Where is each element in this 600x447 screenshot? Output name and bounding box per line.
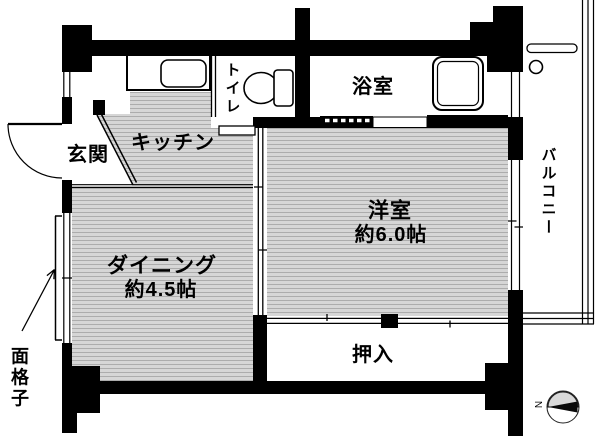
wall-segment — [493, 6, 523, 22]
bath-folding-door — [320, 116, 373, 128]
toilet-tank — [274, 70, 293, 106]
floor-plan: 玄関 キッチン トイレ 浴室 洋室 約6.0帖 ダイニング 約4.5帖 押入 バ… — [0, 0, 600, 447]
grate-arrow-line — [22, 270, 55, 332]
bathtub — [433, 57, 483, 110]
wall-segment — [295, 8, 310, 128]
bath-label: 浴室 — [352, 77, 394, 97]
wall-segment — [253, 117, 320, 128]
balcony-divider-panel — [527, 44, 577, 53]
dining-size: 約4.5帖 — [125, 280, 198, 300]
wall-segment — [93, 100, 105, 115]
balcony-bottom-rail — [523, 313, 594, 324]
wall-segment — [62, 25, 92, 72]
wall-segment — [62, 180, 72, 213]
bath-opening-threshold — [373, 117, 427, 128]
window-grate — [55, 216, 62, 340]
kitchen-room-sliding-door — [254, 128, 267, 315]
balcony-faucet — [530, 61, 543, 74]
compass-icon — [547, 392, 578, 423]
kitchen-window — [64, 72, 70, 97]
floor-plan-drawing — [0, 0, 600, 447]
dining-window — [62, 213, 72, 343]
wall-segment — [508, 117, 523, 160]
closet-label: 押入 — [352, 345, 394, 365]
wall-segment — [62, 366, 100, 413]
western-room-label: 洋室 — [368, 201, 412, 222]
toilet-partition — [212, 56, 216, 117]
dining-label: ダイニング — [107, 256, 217, 277]
bath-window — [512, 72, 520, 117]
entrance-label: 玄関 — [67, 145, 109, 165]
kitchen-sink — [161, 60, 206, 87]
compass-north-label: N — [535, 400, 545, 408]
wall-segment — [487, 22, 523, 72]
wall-segment — [427, 115, 508, 128]
wall-segment — [62, 343, 72, 368]
western-room-size: 約6.0帖 — [355, 225, 428, 245]
wall-segment — [62, 413, 77, 433]
wall-segment — [100, 381, 487, 394]
entrance-door-arc — [8, 124, 62, 178]
wall-segment — [381, 314, 398, 328]
grate-arrow — [22, 270, 55, 332]
kitchen-label: キッチン — [131, 133, 215, 153]
toilet-label: トイレ — [225, 62, 240, 116]
wall-segment — [485, 363, 523, 410]
balcony-label: バルコニー — [541, 147, 556, 237]
toilet-bowl — [244, 73, 278, 104]
window-grate-label: 面格子 — [10, 347, 28, 410]
balcony-outer-rail — [583, 0, 594, 324]
wall-segment — [253, 315, 267, 385]
balcony-railing — [523, 0, 594, 324]
balcony-window — [508, 160, 523, 290]
wall-segment — [62, 97, 72, 124]
toilet-door-leaf — [219, 126, 255, 135]
